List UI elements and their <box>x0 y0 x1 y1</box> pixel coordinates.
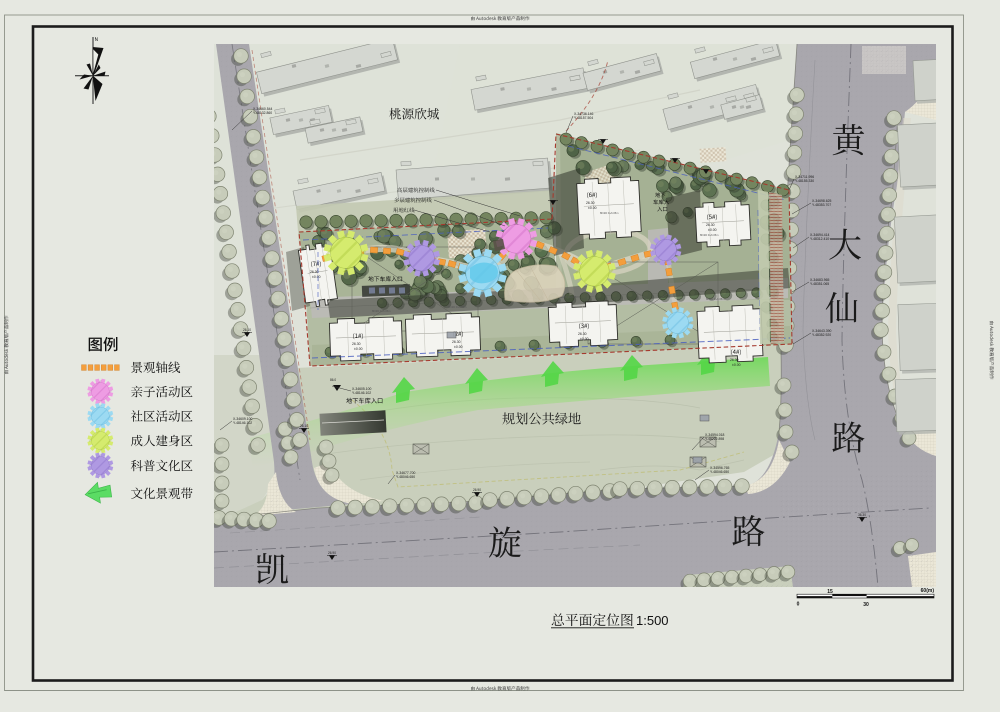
svg-text:±0.00: ±0.00 <box>354 347 363 351</box>
svg-text:26.30: 26.30 <box>706 223 715 227</box>
svg-text:Y-48352.920: Y-48352.920 <box>812 333 831 337</box>
svg-text:26.90: 26.90 <box>473 488 481 492</box>
svg-text:36.30: 36.30 <box>858 513 866 517</box>
svg-text:±0.00: ±0.00 <box>454 345 463 349</box>
svg-text:86.0: 86.0 <box>330 378 336 382</box>
svg-text:Y-48046.650: Y-48046.650 <box>710 470 729 474</box>
svg-text:26.30: 26.30 <box>730 358 739 362</box>
svg-text:26.30: 26.30 <box>352 342 361 346</box>
svg-text:26.90: 26.90 <box>328 551 336 555</box>
svg-text:Y-48155.330: Y-48155.330 <box>795 179 814 183</box>
svg-text:Y-48146.102: Y-48146.102 <box>352 391 371 395</box>
svg-text:Y-48046.650: Y-48046.650 <box>396 475 415 479</box>
svg-text:26.10: 26.10 <box>243 328 251 332</box>
svg-text:Y-48353.707: Y-48353.707 <box>812 203 831 207</box>
svg-text:60(m): 60(m) <box>921 588 935 594</box>
svg-text:Y-48132.860: Y-48132.860 <box>253 111 272 115</box>
svg-text:Y-48351.065: Y-48351.065 <box>810 282 829 286</box>
svg-text:26.30: 26.30 <box>310 270 319 274</box>
svg-text:15: 15 <box>827 589 833 595</box>
svg-text:8F/2D D+6.05m: 8F/2D D+6.05m <box>560 295 578 299</box>
svg-text:8F/2D D+6.05m: 8F/2D D+6.05m <box>600 211 618 215</box>
svg-text:30: 30 <box>863 602 869 608</box>
svg-text:8F/2D D+6.05m: 8F/2D D+6.05m <box>448 305 466 309</box>
svg-text:Y-48146.102: Y-48146.102 <box>233 421 252 425</box>
svg-text:26.10: 26.10 <box>300 424 308 428</box>
svg-text:±0.00: ±0.00 <box>580 337 589 341</box>
svg-text:±0.00: ±0.00 <box>312 275 321 279</box>
svg-text:Y-48222.898: Y-48222.898 <box>705 437 724 441</box>
svg-text:8F/2D D+6.05m: 8F/2D D+6.05m <box>372 309 390 313</box>
svg-text:8F/2D D+6.05m: 8F/2D D+6.05m <box>706 297 724 301</box>
svg-text:8F/2D D+6.05m: 8F/2D D+6.05m <box>700 233 718 237</box>
svg-text:Y-48157.504: Y-48157.504 <box>574 116 593 120</box>
svg-text:±0.00: ±0.00 <box>732 363 741 367</box>
svg-text:26.30: 26.30 <box>586 201 595 205</box>
svg-text:0: 0 <box>797 602 800 608</box>
svg-text:±0.00: ±0.00 <box>588 206 597 210</box>
svg-text:1:500: 1:500 <box>636 613 669 628</box>
svg-text:26.30: 26.30 <box>452 340 461 344</box>
svg-text:26.30: 26.30 <box>578 332 587 336</box>
svg-text:±0.00: ±0.00 <box>708 228 717 232</box>
svg-text:Y-48312.410: Y-48312.410 <box>810 237 829 241</box>
